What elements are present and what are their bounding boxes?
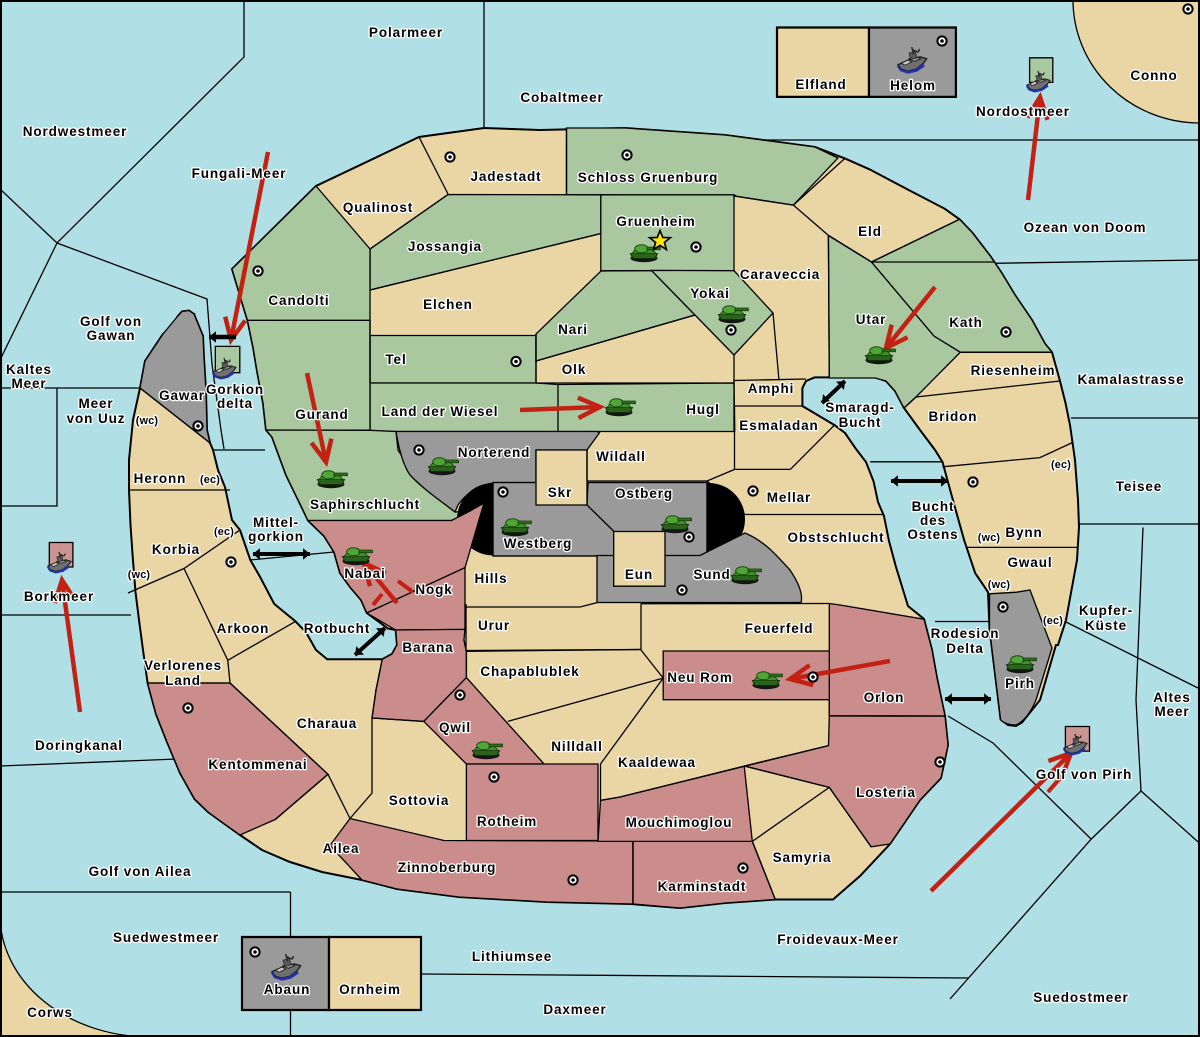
svg-text:Schloss Gruenburg: Schloss Gruenburg xyxy=(578,170,719,185)
svg-text:(wc): (wc) xyxy=(978,532,1001,544)
svg-text:Altes: Altes xyxy=(1153,690,1191,705)
svg-text:Sottovia: Sottovia xyxy=(389,793,449,808)
svg-text:Samyria: Samyria xyxy=(773,850,832,865)
svg-text:Zinnoberburg: Zinnoberburg xyxy=(398,860,497,875)
svg-text:Borkmeer: Borkmeer xyxy=(24,589,94,604)
svg-text:Feuerfeld: Feuerfeld xyxy=(745,621,814,636)
svg-text:Neu Rom: Neu Rom xyxy=(667,670,733,685)
svg-text:Gorkion: Gorkion xyxy=(206,382,264,397)
svg-text:Delta: Delta xyxy=(946,641,984,656)
svg-text:(ec): (ec) xyxy=(1051,459,1071,471)
svg-text:Land der Wiesel: Land der Wiesel xyxy=(382,404,499,419)
svg-text:Kupfer-: Kupfer- xyxy=(1079,603,1133,618)
svg-text:Meer: Meer xyxy=(11,376,46,391)
svg-text:Ostens: Ostens xyxy=(907,527,958,542)
svg-text:Gruenheim: Gruenheim xyxy=(616,214,695,229)
svg-text:Wildall: Wildall xyxy=(596,449,646,464)
svg-text:Eun: Eun xyxy=(625,567,653,582)
svg-text:Bridon: Bridon xyxy=(929,409,978,424)
svg-text:Meer: Meer xyxy=(78,396,113,411)
svg-text:Corws: Corws xyxy=(27,1005,73,1020)
svg-text:Ailea: Ailea xyxy=(323,841,360,856)
svg-text:Meer: Meer xyxy=(1154,704,1189,719)
svg-text:Helom: Helom xyxy=(890,78,936,93)
svg-text:Rodesion: Rodesion xyxy=(931,626,1000,641)
svg-text:Qwil: Qwil xyxy=(439,720,471,735)
svg-text:Gawan: Gawan xyxy=(87,328,136,343)
svg-text:Charaua: Charaua xyxy=(297,716,357,731)
svg-text:Bucht: Bucht xyxy=(912,499,955,514)
svg-text:Lithiumsee: Lithiumsee xyxy=(472,949,552,964)
svg-text:gorkion: gorkion xyxy=(248,529,304,544)
svg-text:Riesenheim: Riesenheim xyxy=(971,363,1056,378)
svg-text:Rotheim: Rotheim xyxy=(477,814,537,829)
svg-text:Gawar: Gawar xyxy=(159,388,205,403)
svg-text:Nilldall: Nilldall xyxy=(551,739,602,754)
svg-text:Esmaladan: Esmaladan xyxy=(739,418,818,433)
svg-text:Kath: Kath xyxy=(949,315,983,330)
svg-text:Land: Land xyxy=(165,673,201,688)
svg-text:Barana: Barana xyxy=(402,640,453,655)
svg-text:Chapablublek: Chapablublek xyxy=(480,664,579,679)
svg-text:Rotbucht: Rotbucht xyxy=(304,621,370,636)
svg-text:Verlorenes: Verlorenes xyxy=(144,658,222,673)
svg-text:Gwaul: Gwaul xyxy=(1007,555,1052,570)
svg-text:Orlon: Orlon xyxy=(864,690,905,705)
svg-text:Korbia: Korbia xyxy=(152,542,200,557)
svg-text:Mellar: Mellar xyxy=(767,490,811,505)
svg-text:Nordostmeer: Nordostmeer xyxy=(976,104,1070,119)
svg-text:Kaltes: Kaltes xyxy=(6,362,52,377)
svg-text:Skr: Skr xyxy=(548,485,572,500)
svg-text:(wc): (wc) xyxy=(128,569,151,581)
svg-text:Sund: Sund xyxy=(693,567,730,582)
svg-text:Caraveccia: Caraveccia xyxy=(740,267,820,282)
svg-text:Obstschlucht: Obstschlucht xyxy=(787,530,884,545)
svg-text:Mittel-: Mittel- xyxy=(253,515,299,530)
svg-text:(ec): (ec) xyxy=(200,474,220,486)
svg-text:Golf von Ailea: Golf von Ailea xyxy=(89,864,192,879)
svg-text:Küste: Küste xyxy=(1085,618,1127,633)
svg-text:Fungali-Meer: Fungali-Meer xyxy=(192,166,287,181)
svg-text:(ec): (ec) xyxy=(1043,615,1063,627)
svg-text:Kamalastrasse: Kamalastrasse xyxy=(1077,372,1184,387)
svg-text:Ostberg: Ostberg xyxy=(615,486,673,501)
svg-text:(wc): (wc) xyxy=(136,415,159,427)
svg-text:Teisee: Teisee xyxy=(1116,479,1162,494)
svg-text:Tel: Tel xyxy=(385,352,406,367)
svg-text:Bynn: Bynn xyxy=(1005,525,1042,540)
svg-text:Hugl: Hugl xyxy=(686,402,720,417)
svg-text:Gurand: Gurand xyxy=(295,407,348,422)
svg-text:Doringkanal: Doringkanal xyxy=(35,738,123,753)
svg-text:Karminstadt: Karminstadt xyxy=(658,879,747,894)
svg-text:Suedwestmeer: Suedwestmeer xyxy=(113,930,219,945)
svg-text:von Uuz: von Uuz xyxy=(67,411,126,426)
svg-text:Hills: Hills xyxy=(474,571,507,586)
svg-text:Losteria: Losteria xyxy=(856,785,916,800)
svg-text:Utar: Utar xyxy=(856,312,887,327)
svg-text:Jadestadt: Jadestadt xyxy=(470,169,541,184)
svg-text:Elchen: Elchen xyxy=(423,297,473,312)
svg-text:Nabai: Nabai xyxy=(344,566,385,581)
svg-text:delta: delta xyxy=(217,396,253,411)
svg-text:Urur: Urur xyxy=(478,618,510,633)
svg-text:Heronn: Heronn xyxy=(134,471,187,486)
svg-text:Norterend: Norterend xyxy=(458,445,531,460)
svg-text:des: des xyxy=(920,513,946,528)
svg-text:(wc): (wc) xyxy=(988,579,1011,591)
svg-text:Bucht: Bucht xyxy=(839,415,882,430)
svg-text:Golf von: Golf von xyxy=(80,314,142,329)
svg-text:Amphi: Amphi xyxy=(748,381,795,396)
svg-text:Abaun: Abaun xyxy=(264,982,311,997)
svg-text:Jossangia: Jossangia xyxy=(408,239,482,254)
svg-text:(ec): (ec) xyxy=(214,526,234,538)
svg-text:Elfland: Elfland xyxy=(795,77,846,92)
svg-text:Golf von Pirh: Golf von Pirh xyxy=(1036,767,1132,782)
svg-text:Saphirschlucht: Saphirschlucht xyxy=(310,497,420,512)
svg-text:Nordwestmeer: Nordwestmeer xyxy=(23,124,128,139)
svg-text:Kaaldewaa: Kaaldewaa xyxy=(618,755,696,770)
svg-text:Polarmeer: Polarmeer xyxy=(369,25,443,40)
svg-text:Suedostmeer: Suedostmeer xyxy=(1033,990,1128,1005)
svg-text:Eld: Eld xyxy=(858,224,882,239)
svg-text:Arkoon: Arkoon xyxy=(217,621,270,636)
svg-text:Nari: Nari xyxy=(558,322,588,337)
svg-text:Olk: Olk xyxy=(562,362,586,377)
svg-text:Candolti: Candolti xyxy=(268,293,329,308)
svg-text:Qualinost: Qualinost xyxy=(343,200,413,215)
svg-text:Pirh: Pirh xyxy=(1005,676,1035,691)
svg-text:Daxmeer: Daxmeer xyxy=(543,1002,606,1017)
svg-text:Yokai: Yokai xyxy=(690,286,730,301)
svg-text:Kentommenai: Kentommenai xyxy=(208,757,307,772)
svg-text:Froidevaux-Meer: Froidevaux-Meer xyxy=(777,932,899,947)
svg-text:Conno: Conno xyxy=(1130,68,1177,83)
svg-text:Ornheim: Ornheim xyxy=(339,982,401,997)
svg-text:Smaragd-: Smaragd- xyxy=(825,400,894,415)
svg-text:Mouchimoglou: Mouchimoglou xyxy=(626,815,733,830)
svg-text:Ozean von Doom: Ozean von Doom xyxy=(1024,220,1147,235)
svg-text:Nogk: Nogk xyxy=(415,582,452,597)
svg-text:Westberg: Westberg xyxy=(504,536,572,551)
svg-text:Cobaltmeer: Cobaltmeer xyxy=(520,90,603,105)
